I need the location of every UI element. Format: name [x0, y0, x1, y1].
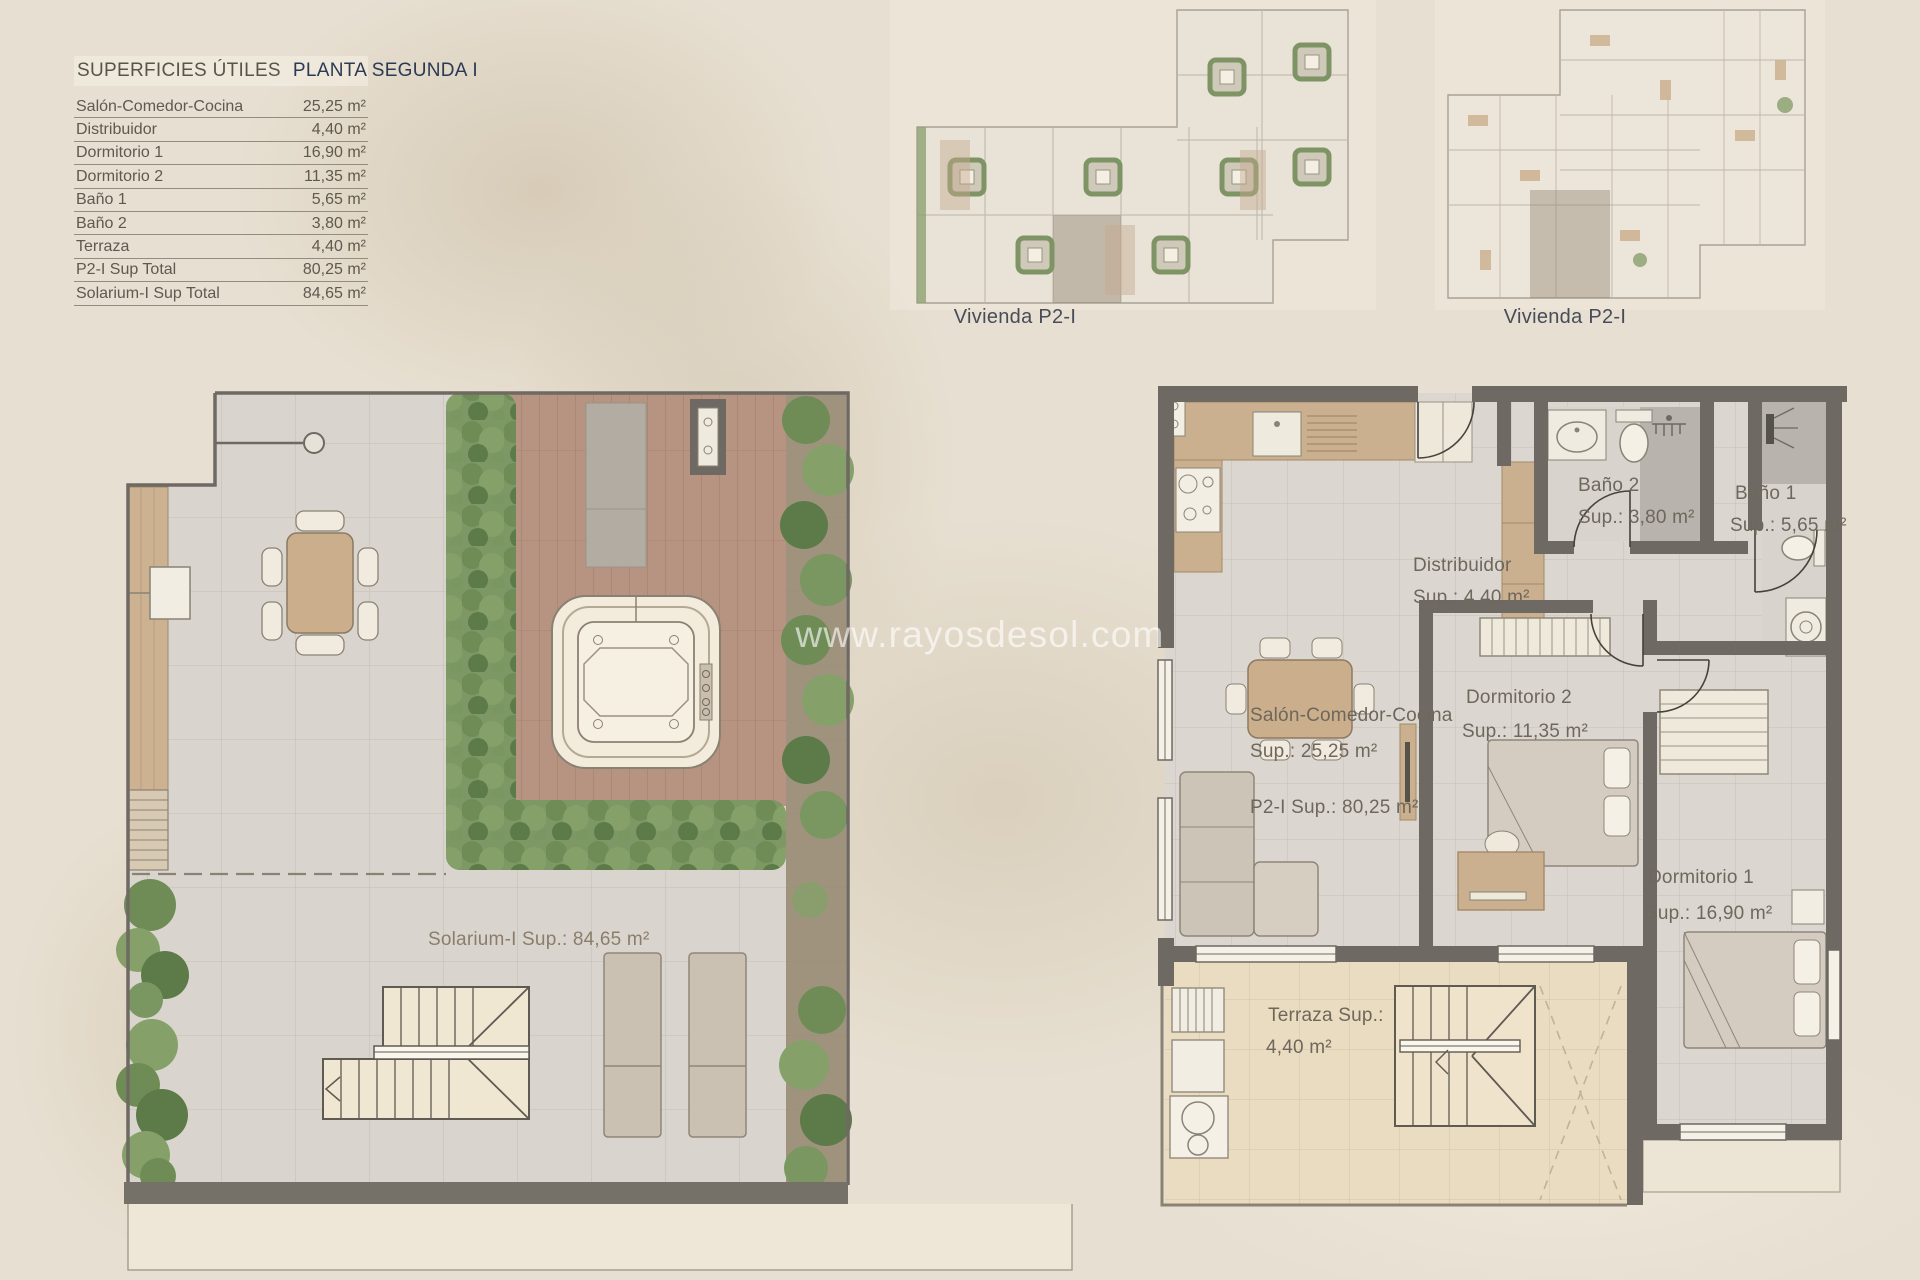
room-area-terraza: 4,40 m² [1266, 1038, 1332, 1057]
wardrobe-dorm1 [1660, 690, 1768, 774]
deck-planter [586, 509, 646, 567]
surface-table-rows: Salón-Comedor-Cocina25,25 m² Distribuido… [74, 95, 368, 306]
room-area-distribuidor: Sup.: 4,40 m² [1413, 588, 1530, 607]
table-row-total: Solarium-I Sup Total84,65 m² [74, 282, 368, 305]
table-row: Baño 15,65 m² [74, 189, 368, 212]
room-label-dorm2: Dormitorio 2 [1466, 688, 1572, 707]
room-label-terraza: Terraza Sup.: [1268, 1006, 1384, 1025]
table-row: Terraza4,40 m² [74, 235, 368, 258]
table-subtitle: PLANTA SEGUNDA I [293, 60, 478, 82]
table-row: Dormitorio 116,90 m² [74, 142, 368, 165]
lower-floor-outline [128, 1204, 1072, 1270]
deck-planter [586, 403, 646, 509]
solarium-area-label: Solarium-I Sup.: 84,65 m² [428, 930, 649, 949]
room-label-distribuidor: Distribuidor [1413, 556, 1512, 575]
surface-table: SUPERFICIES ÚTILES PLANTA SEGUNDA I Saló… [74, 56, 368, 306]
room-area-bano1: Sup.: 5,65 m² [1730, 516, 1847, 535]
mini-plan-2-caption: Vivienda P2-I [1445, 306, 1685, 329]
table-row: Dormitorio 211,35 m² [74, 165, 368, 188]
table-row: Distribuidor4,40 m² [74, 118, 368, 141]
terrace-fixtures [1170, 988, 1228, 1158]
table-row-total: P2-I Sup Total80,25 m² [74, 259, 368, 282]
watermark: www.rayosdesol.com [770, 614, 1190, 656]
room-area-dorm1: Sup.: 16,90 m² [1645, 904, 1772, 923]
room-label-bano2: Baño 2 [1578, 476, 1639, 495]
room-label-bano1: Baño 1 [1735, 484, 1796, 503]
room-area-bano2: Sup.: 3,80 m² [1578, 508, 1695, 527]
stairs-apartment [1395, 986, 1535, 1126]
mini-plan-1-caption: Vivienda P2-I [895, 306, 1135, 329]
mini-plan-1 [890, 0, 1376, 310]
bottom-wall [124, 1182, 848, 1204]
table-row: Salón-Comedor-Cocina25,25 m² [74, 95, 368, 118]
ledge [1643, 1140, 1840, 1192]
room-total-salon: P2-I Sup.: 80,25 m² [1250, 798, 1419, 817]
palm-strip [779, 393, 854, 1190]
surface-table-title: SUPERFICIES ÚTILES PLANTA SEGUNDA I [74, 56, 368, 86]
table-title: SUPERFICIES ÚTILES [77, 60, 281, 82]
jacuzzi [552, 596, 720, 768]
room-label-salon: Salón-Comedor-Cocina [1250, 706, 1453, 725]
solarium-plan [116, 393, 1072, 1270]
wardrobe-dorm2 [1480, 618, 1610, 656]
room-label-dorm1: Dormitorio 1 [1648, 868, 1754, 887]
outdoor-unit [690, 399, 726, 475]
mini-plan-2 [1435, 0, 1825, 310]
table-row: Baño 23,80 m² [74, 212, 368, 235]
room-area-salon: Sup.: 25,25 m² [1250, 742, 1377, 761]
apartment-plan [1158, 386, 1847, 1205]
room-area-dorm2: Sup.: 11,35 m² [1462, 722, 1588, 741]
floorplan-sheet: SUPERFICIES ÚTILES PLANTA SEGUNDA I Saló… [0, 0, 1920, 1280]
